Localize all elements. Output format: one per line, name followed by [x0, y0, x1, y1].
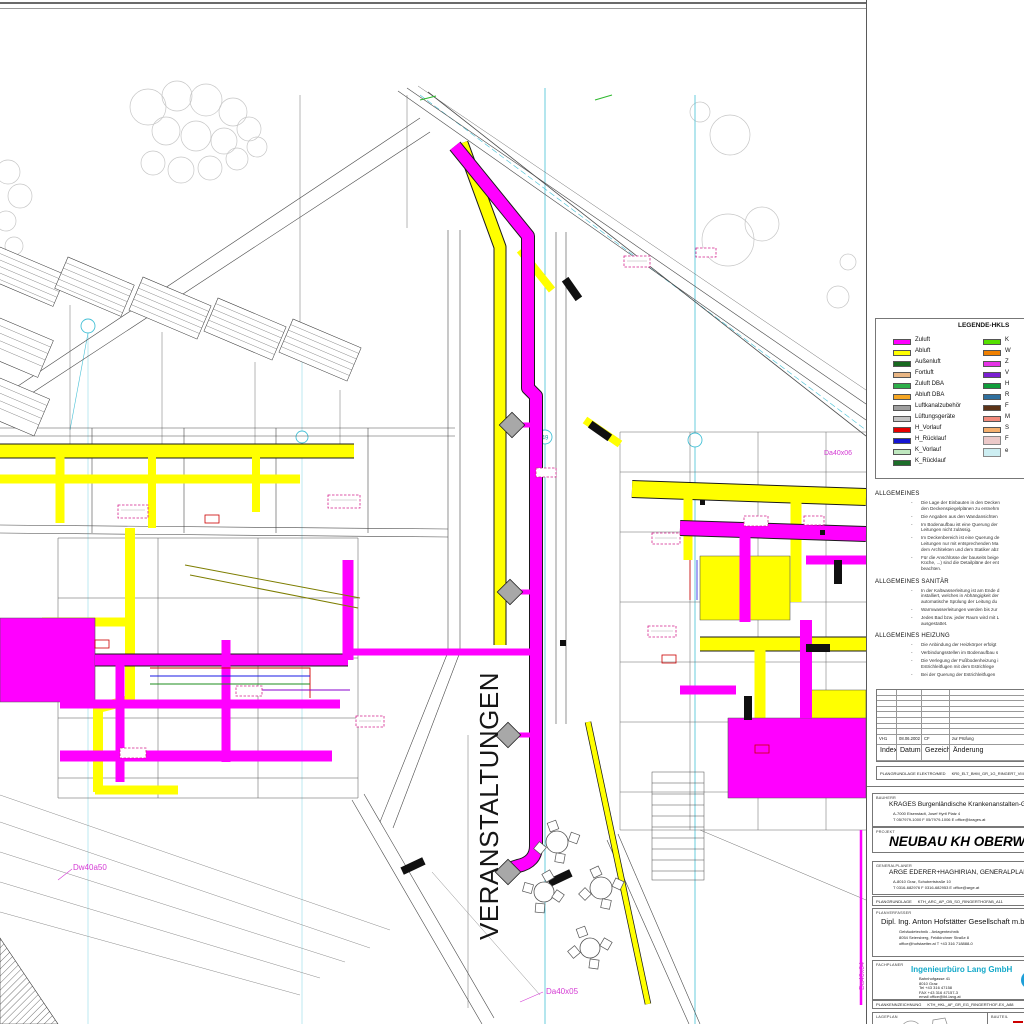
legend-item-label: K_Vorlauf [915, 447, 941, 453]
note-item: Bei der Querung der Estrichleitfugen [921, 672, 1013, 678]
planverfasser-name: Dipl. Ing. Anton Hofstätter Gesellschaft… [881, 917, 1024, 926]
generalplaner-name: ARGE EDERER+HAGHIRIAN, GENERALPLAN GMBH [889, 869, 1024, 876]
note-item: Die Lage der Einbauten in den Decken den… [921, 500, 1013, 511]
legend-item-label: H_Vorlauf [915, 425, 941, 431]
note-item: Die Verlegung der Fußbodenheizung i Estr… [921, 658, 1013, 669]
bauteil-label: BAUTEIL [991, 1015, 1008, 1019]
notes-section-title: ALLGEMEINES [875, 491, 1024, 497]
duct-label-leaders [58, 869, 543, 1002]
legend-color-chip [893, 416, 911, 422]
legend-item-label: Zuluft [915, 337, 930, 343]
legend-color-chip [983, 416, 1001, 422]
legend-item-label: Lüftungsgeräte [915, 414, 955, 420]
legend-color-chip [983, 350, 1001, 356]
fachplaner-name: Ingenieurbüro Lang GmbH [911, 965, 1012, 974]
legend-item-label: F [1005, 436, 1009, 442]
planverfasser-label: PLANVERFASSER [876, 911, 911, 915]
generalplaner-label: GENERALPLANER [876, 864, 912, 868]
revision-header-index: Index [877, 745, 897, 761]
legend-color-chip [983, 361, 1001, 367]
revision-drawn-by: CF [922, 735, 950, 745]
legend-color-chip [983, 372, 1001, 378]
plankennzeichnung-label: PLANKENNZEICHNUNG [876, 1002, 921, 1007]
legend-item-label: W [1005, 348, 1011, 354]
legend-item-label: Fortluft [915, 370, 934, 376]
legend-color-chip [893, 361, 911, 367]
generalplaner-address: A-8010 Graz, Schubertstraße 10 [893, 879, 951, 884]
note-item: Jedes Bad bzw. jeder Raum wird mit L aus… [921, 615, 1013, 626]
legend-color-chip [893, 427, 911, 433]
legend-item-label: R [1005, 392, 1009, 398]
note-item: Die Anbindung der Heizkörper erfolgt [921, 642, 1013, 648]
legend-item-label: K [1005, 337, 1009, 343]
hatched-area [0, 938, 58, 1024]
legend-color-chip [893, 339, 911, 345]
plan-code-strip: PLANGRUNDLAGE ELEKTRO/MED KR0_ELT_BHM_GR… [876, 766, 1024, 780]
plan-code-label: PLANGRUNDLAGE ELEKTRO/MED [880, 771, 946, 776]
legend-color-chip [983, 394, 1001, 400]
legend-color-chip [893, 460, 911, 466]
legend-item-label: H [1005, 381, 1009, 387]
legend-title: LEGENDE-HKLS [958, 322, 1009, 329]
legend-color-chip [893, 449, 911, 455]
projekt-block: PROJEKT NEUBAU KH OBERWART [872, 827, 1024, 853]
site-dimension-lines [0, 795, 540, 995]
project-title: NEUBAU KH OBERWART [889, 834, 1024, 849]
revision-change: zur Prüfung [950, 735, 1024, 745]
note-item: Die Angaben aus den Wandansichten [921, 514, 1013, 520]
legend-item-label: e [1005, 448, 1008, 454]
stairs [652, 772, 704, 880]
duct-label-left: Dw40a50 [73, 863, 107, 872]
legend-item-label: Außenluft [915, 359, 941, 365]
legend-color-chip [983, 436, 1001, 445]
bauherr-contact: T 05/7979-1000 F 05/7979-1006 E office@k… [893, 817, 985, 822]
legend-item-label: Z [1005, 359, 1009, 365]
room-label-veranstaltungen: VERANSTALTUNGEN [474, 672, 504, 940]
abluft-ducts-yellow [0, 143, 866, 1004]
revision-date: 08.06.2002 [897, 735, 922, 745]
bauherr-address: A-7000 Eisenstadt, Josef Hyrtl Platz 4 [893, 811, 960, 816]
revision-table: VH1 08.06.2002 CF zur Prüfung Index Datu… [876, 689, 1024, 762]
note-item: Im Deckenbereich ist eine Querung de Lei… [921, 535, 1013, 552]
plan-code-value: KR0_ELT_BHM_GR_1G_RINGER7_VIII / 6S [952, 771, 1024, 776]
legend-color-chip [893, 350, 911, 356]
plankennzeichnung-value: KTH_HKL_AF_GR_EG_RINGERTHOF-EX_A88 [927, 1002, 1013, 1007]
duct-label-right: Da40x06 [824, 450, 852, 457]
bauherr-name: KRAGES Burgenländische Krankenanstalten-… [889, 801, 1024, 808]
duct-label-bottom: Da40x05 [546, 987, 579, 996]
note-item: Für die Anschlüsse der bauseits beige Kü… [921, 555, 1013, 572]
fachplaner-label: FACHPLANER [876, 963, 903, 967]
lageplan-block: LAGEPLAN BAUTEIL [872, 1012, 1024, 1024]
legend-item-label: Abluft DBA [915, 392, 944, 398]
note-item: Verbindungsstellen im Bodenaufbau s [921, 650, 1013, 656]
fachplaner-block: FACHPLANER Ingenieurbüro Lang GmbH Bahnh… [872, 960, 1024, 1000]
panel-divider [867, 786, 1024, 787]
revision-header-drawn: Gezeichn. [922, 745, 950, 761]
legend-item-label: K_Rücklauf [915, 458, 946, 464]
revision-index: VH1 [877, 735, 897, 745]
legend-color-chip [983, 383, 1001, 389]
planverfasser-line2: 8054 Seiersberg, Feldkirchner Straße 8 [899, 935, 969, 940]
generalplaner-contact: T 0316-682976 F 0316-682953 E office@arg… [893, 885, 979, 890]
legend-item-label: S [1005, 425, 1009, 431]
legend-color-chip [893, 383, 911, 389]
legend-color-chip [983, 427, 1001, 433]
plangrundlage-strip: PLANGRUNDLAGE KTH_ARC_AP_OB_SO_RINGERTHO… [872, 896, 1024, 906]
legend-item-label: F [1005, 403, 1009, 409]
legend-color-chip [983, 448, 1001, 457]
legend-color-chip [893, 405, 911, 411]
fachplaner-line5: email office@ibl-lang.at [919, 994, 961, 999]
drawing-sheet: { "plan": { "veranstaltungen_label": "VE… [0, 0, 1024, 1024]
legend-color-chip [893, 438, 911, 444]
tree-circles [0, 81, 856, 308]
legend-item-label: Abluft [915, 348, 930, 354]
legend-color-chip [893, 372, 911, 378]
legend-item-label: M [1005, 414, 1010, 420]
legend-color-chip [983, 339, 1001, 345]
site-sketch [893, 1016, 983, 1024]
legend-color-chip [983, 405, 1001, 411]
legend-item-label: H_Rücklauf [915, 436, 946, 442]
duct-schedule-blocks [0, 247, 361, 436]
general-notes: ALLGEMEINES Die Lage der Einbauten in de… [875, 484, 1024, 680]
duct-label-right-vertical: Da40x04 [859, 962, 866, 990]
generalplaner-block: GENERALPLANER ARGE EDERER+HAGHIRIAN, GEN… [872, 861, 1024, 895]
legend-item-label: V [1005, 370, 1009, 376]
note-item: In der Kaltwasserleitung ist am Ende d i… [921, 588, 1013, 605]
notes-section-title: ALLGEMEINES HEIZUNG [875, 633, 1024, 639]
lageplan-divider [987, 1013, 988, 1024]
plangrundlage-label: PLANGRUNDLAGE [876, 899, 912, 904]
title-block-panel: LEGENDE-HKLS Zuluft Abluft Außenluft For… [866, 0, 1024, 1024]
planverfasser-block: PLANVERFASSER Dipl. Ing. Anton Hofstätte… [872, 908, 1024, 957]
planverfasser-line3: office@hofstaetter.at T +43 316 718888-0 [899, 941, 973, 946]
legend-item-label: Luftkanalzubehör [915, 403, 961, 409]
notes-section-title: ALLGEMEINES SANITÄR [875, 579, 1024, 585]
note-item: Im Bodenaufbau ist eine Querung der Leit… [921, 522, 1013, 533]
service-pipes [150, 95, 697, 698]
bauteil-marker [1013, 1021, 1023, 1023]
planverfasser-line1: Gebäudetechnik - Anlagentechnik [899, 929, 959, 934]
plangrundlage-value: KTH_ARC_AP_OB_SO_RINGERTHOFAB_A11 [918, 899, 1003, 904]
note-item: Warmwasserleitungen werden bis zur [921, 607, 1013, 613]
bauherr-block: BAUHERR KRAGES Burgenländische Krankenan… [872, 793, 1024, 827]
bauherr-label: BAUHERR [876, 796, 896, 800]
floor-plan-drawing: 49 [0, 0, 866, 1024]
legend-color-chip [893, 394, 911, 400]
revision-header-date: Datum [897, 745, 922, 761]
plankennzeichnung-strip: PLANKENNZEICHNUNG KTH_HKL_AF_GR_EG_RINGE… [872, 1000, 1024, 1009]
legend-item-label: Zuluft DBA [915, 381, 944, 387]
revision-header-change: Änderung [950, 745, 1024, 761]
